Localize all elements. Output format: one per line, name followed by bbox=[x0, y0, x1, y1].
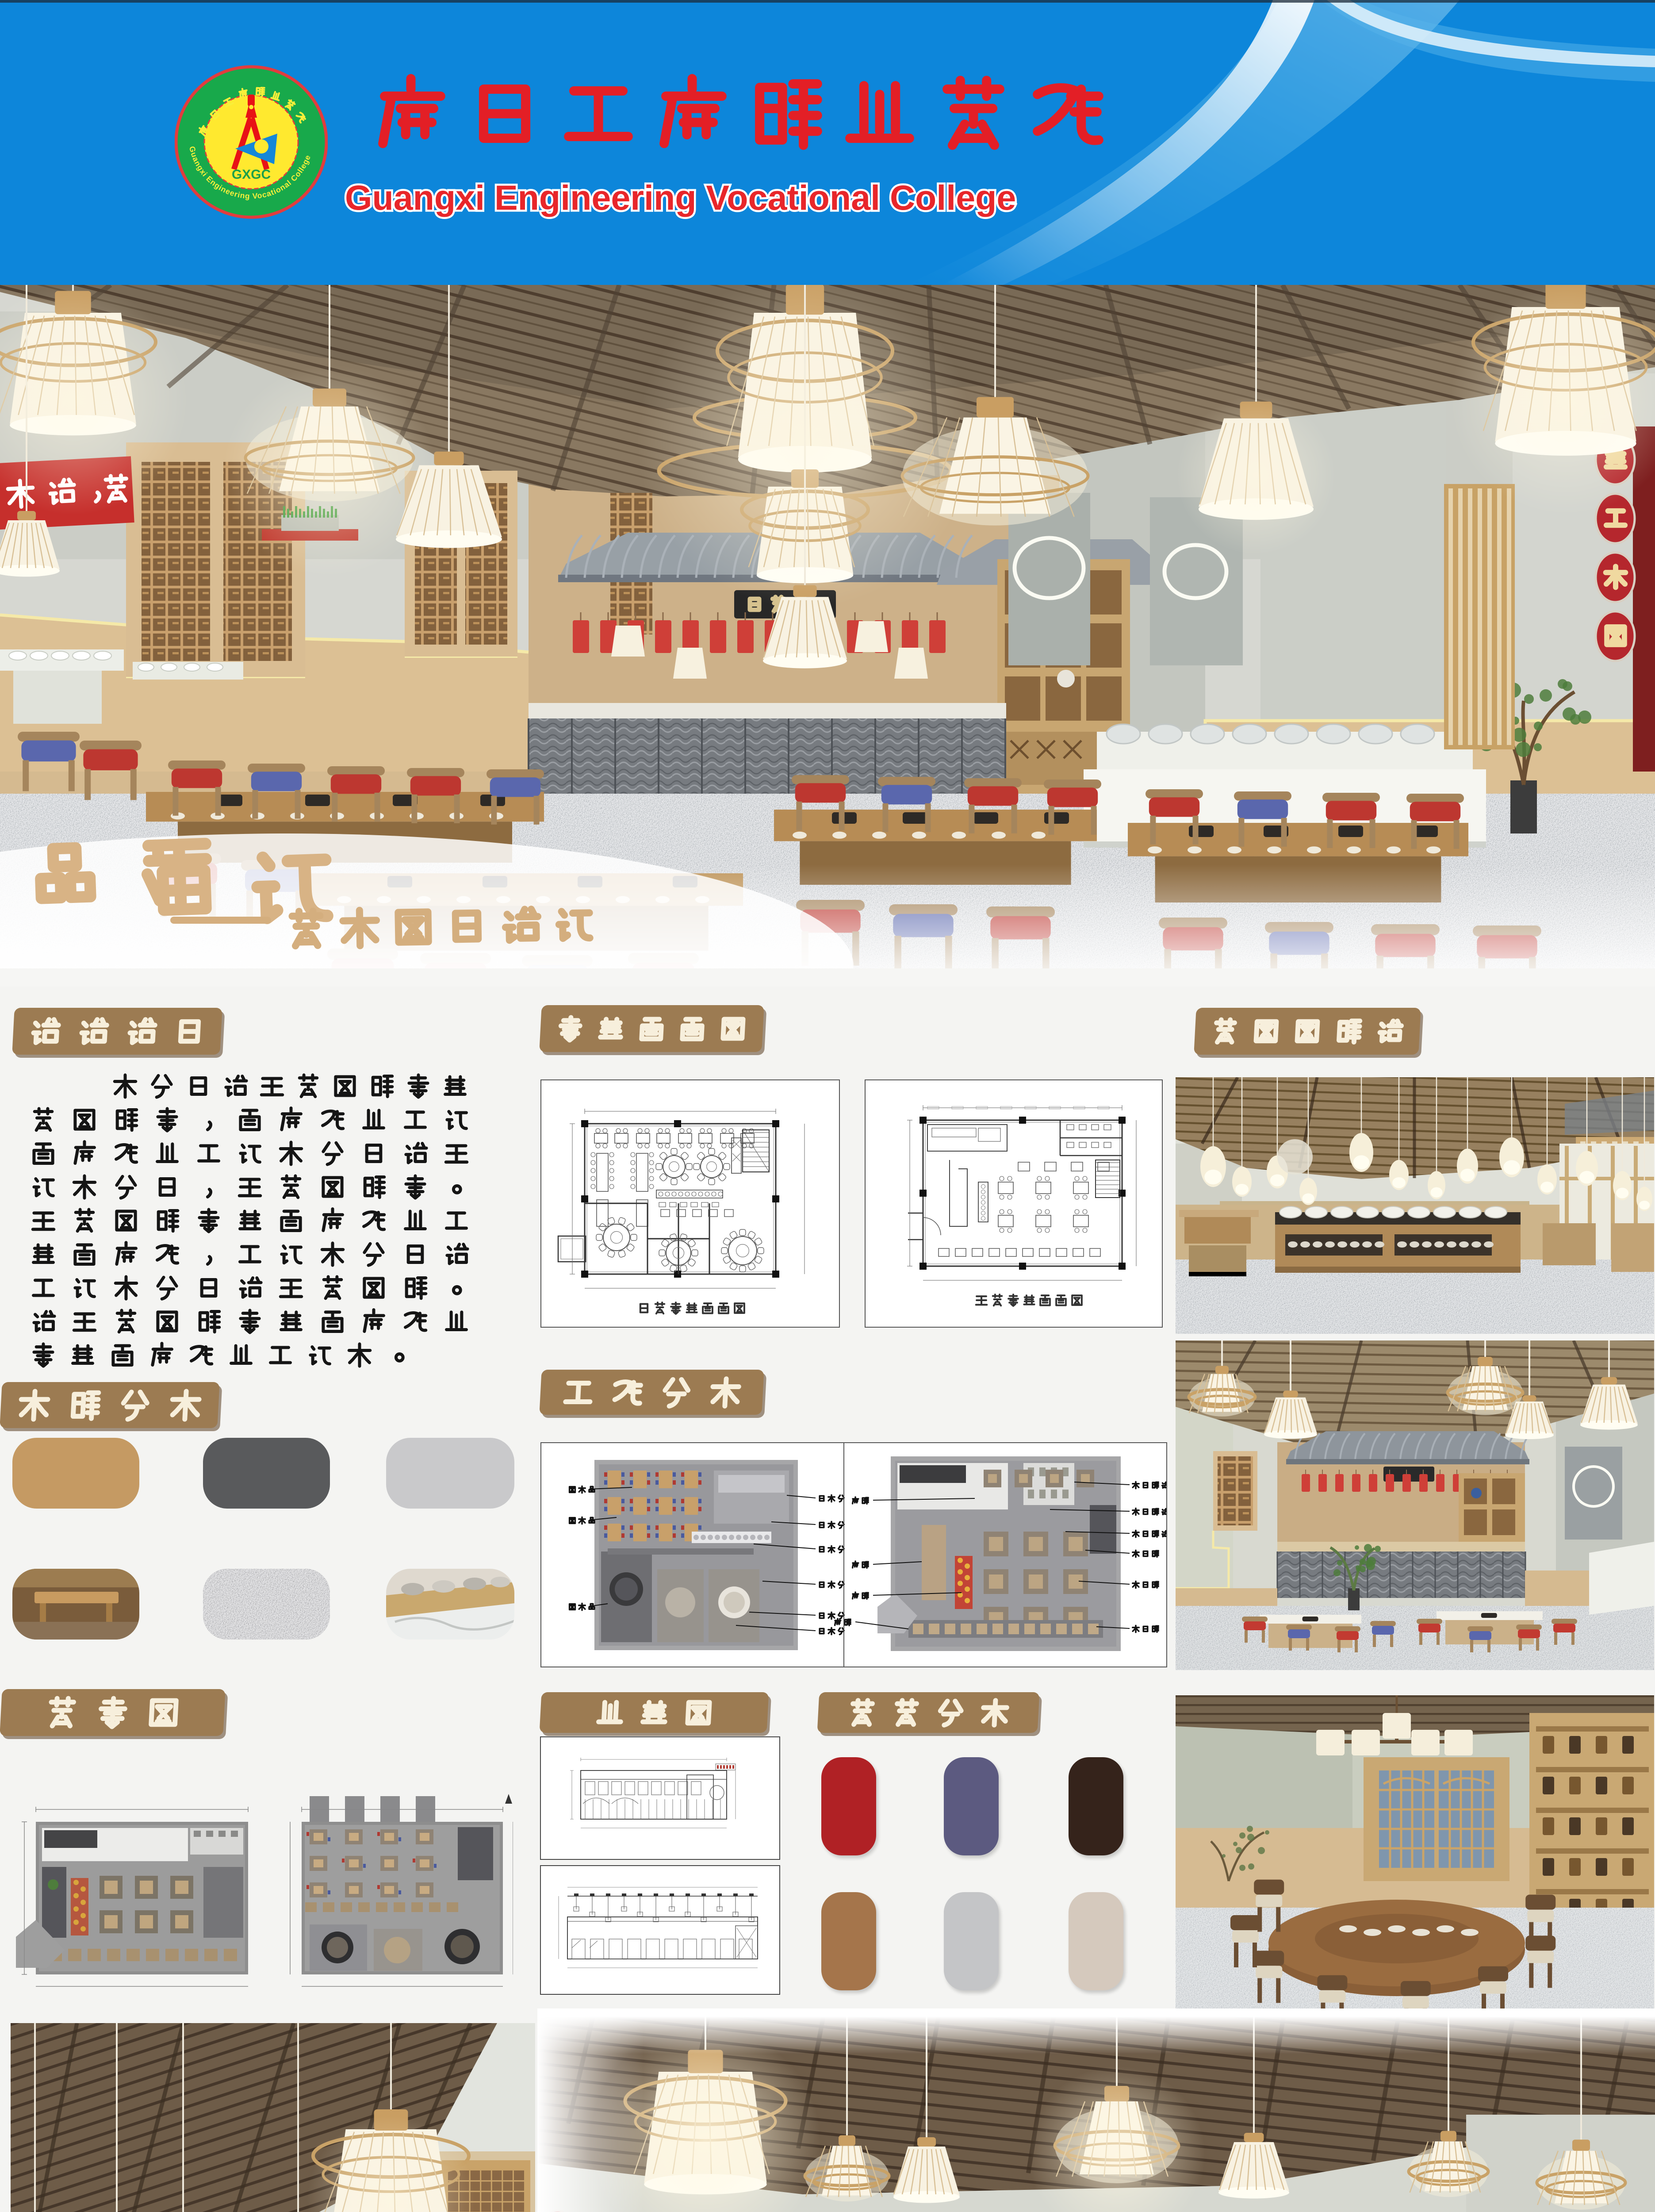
svg-text:Guangxi Engineering Vocational: Guangxi Engineering Vocational College bbox=[345, 178, 1016, 217]
svg-text:GXGC: GXGC bbox=[232, 167, 271, 182]
